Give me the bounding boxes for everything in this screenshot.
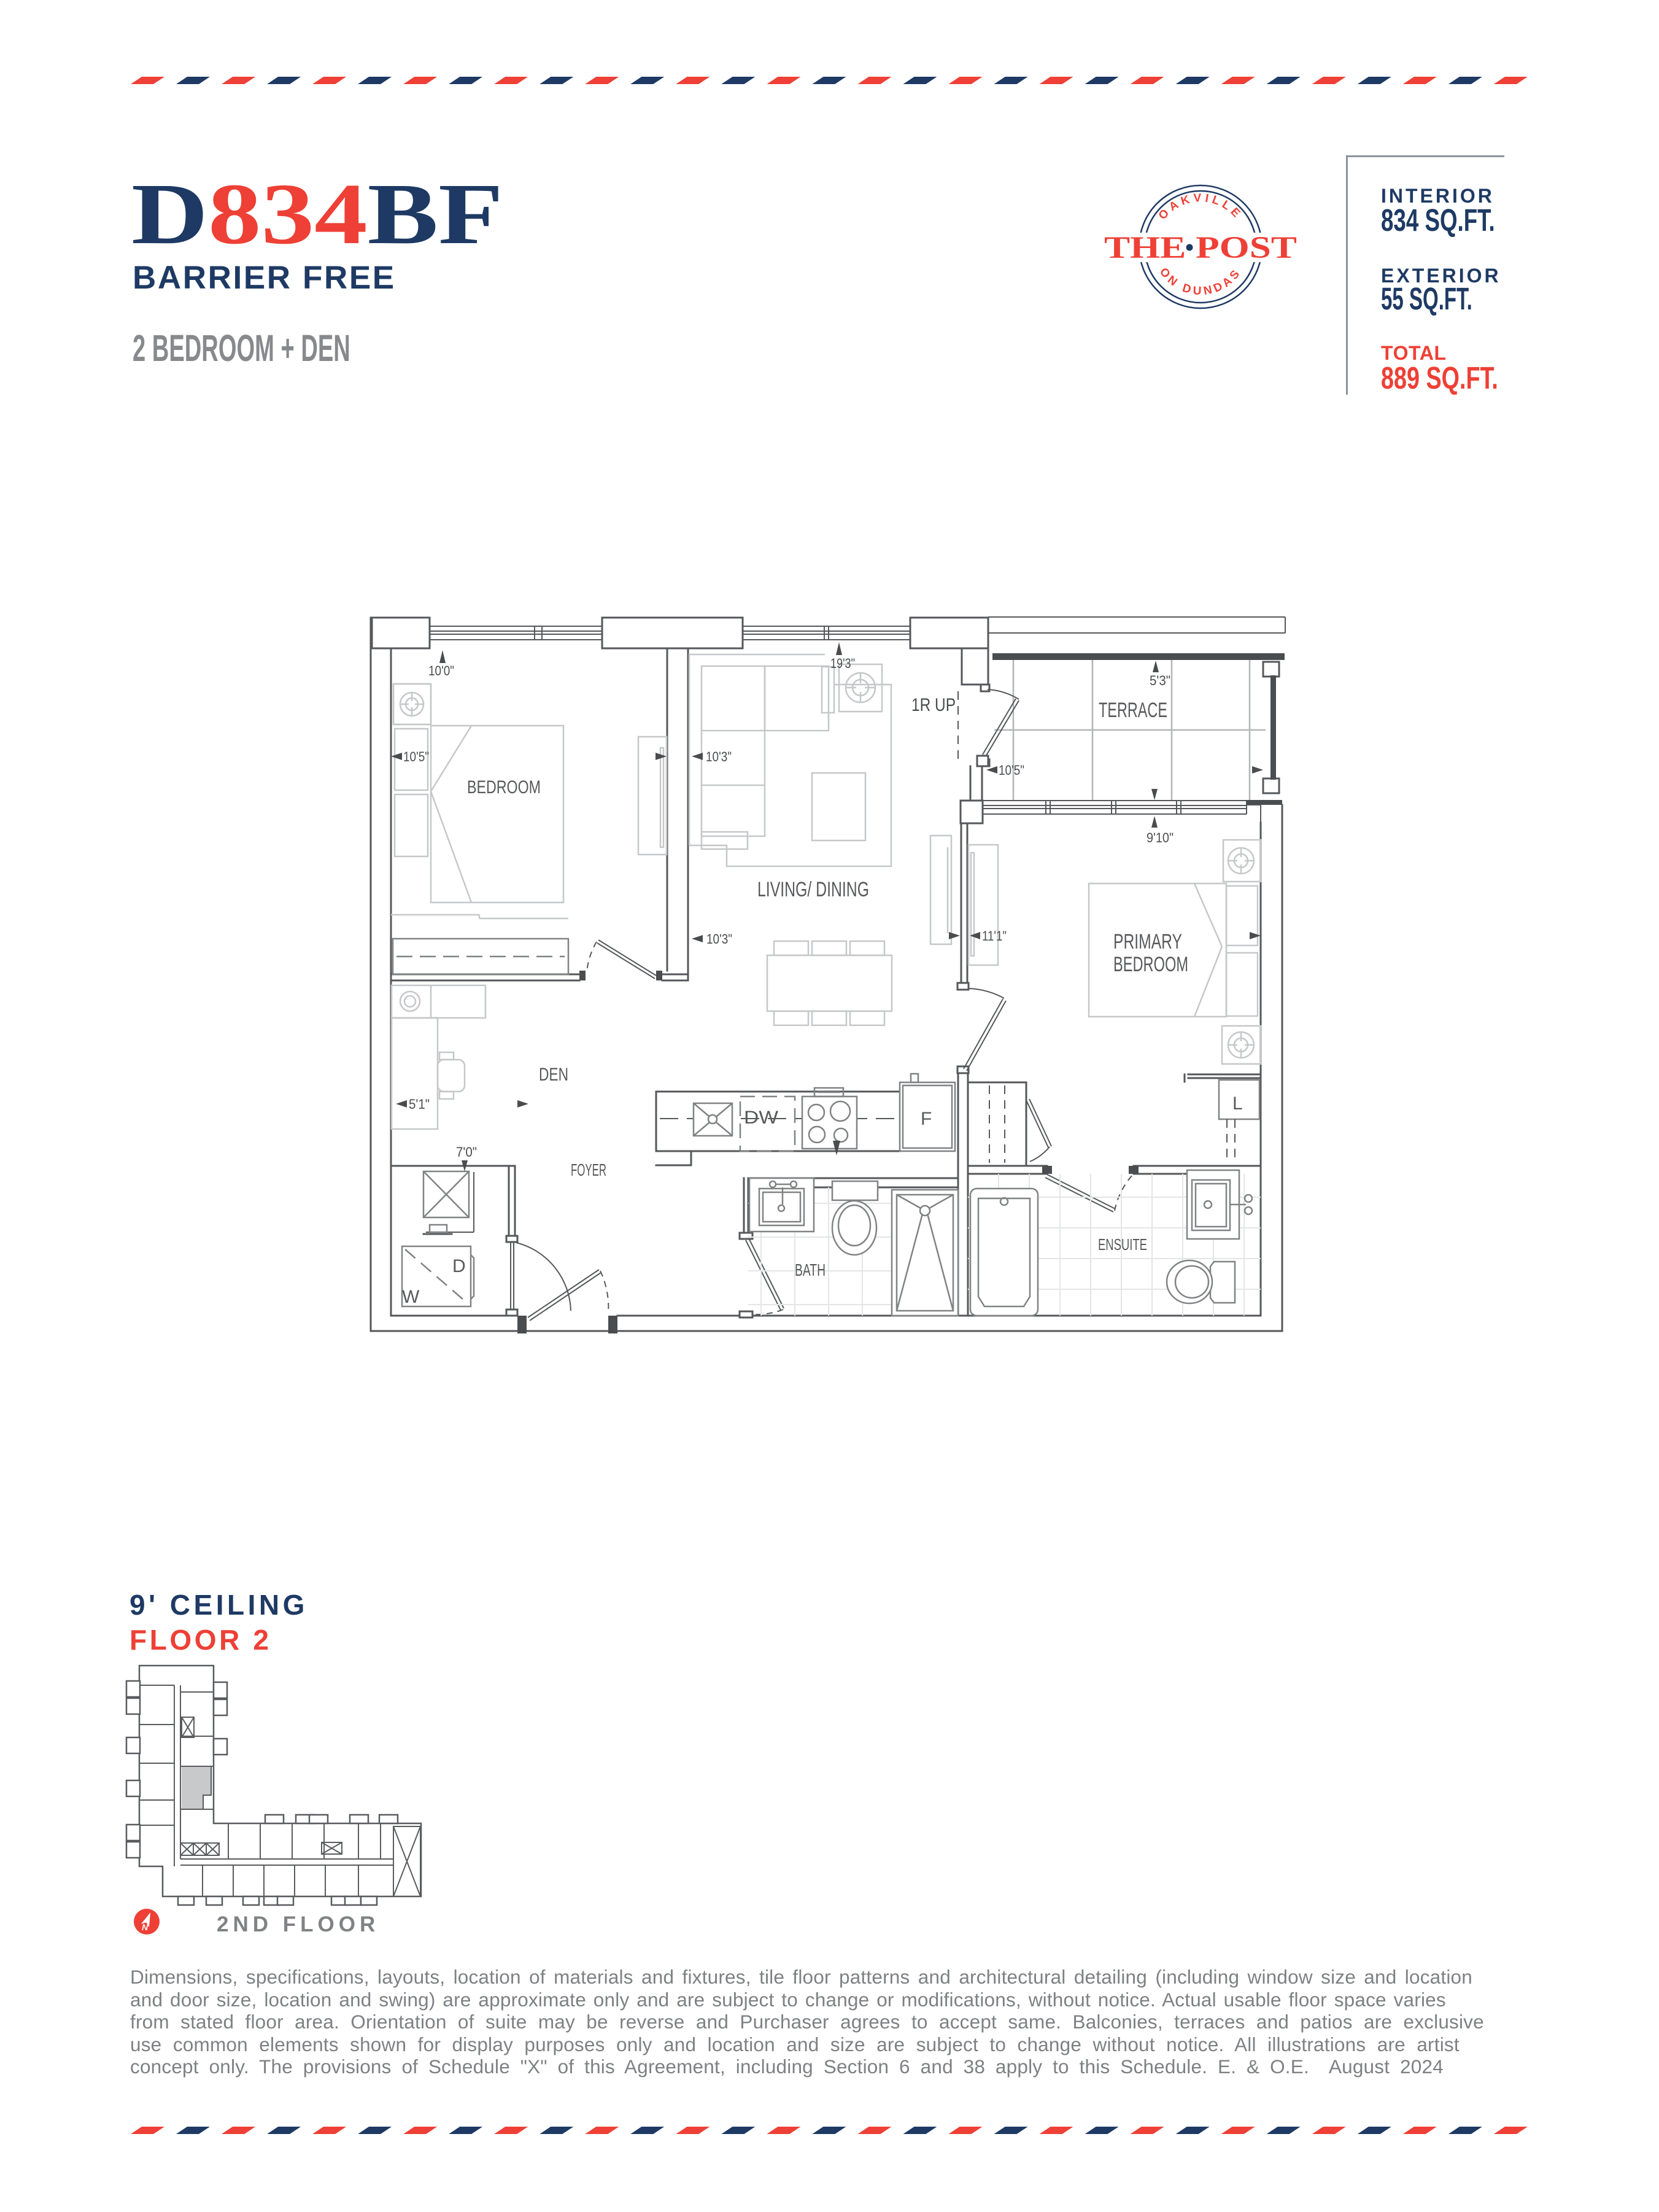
svg-text:DEN: DEN <box>539 1065 568 1085</box>
svg-text:L: L <box>1232 1093 1243 1114</box>
svg-text:10'5": 10'5" <box>999 763 1024 778</box>
svg-text:19'3": 19'3" <box>830 656 855 671</box>
svg-text:BEDROOM: BEDROOM <box>1113 953 1188 976</box>
svg-text:THE POST: THE POST <box>1104 231 1297 265</box>
svg-text:10'5": 10'5" <box>403 749 429 764</box>
svg-text:1R UP: 1R UP <box>911 695 956 715</box>
svg-text:TERRACE: TERRACE <box>1099 699 1167 722</box>
svg-text:7'0": 7'0" <box>456 1144 477 1160</box>
svg-text:10'3": 10'3" <box>706 931 732 947</box>
svg-text:BATH: BATH <box>795 1260 826 1279</box>
svg-text:9'10": 9'10" <box>1147 830 1174 845</box>
svg-text:OAKVILLE: OAKVILLE <box>1156 192 1245 222</box>
svg-text:PRIMARY: PRIMARY <box>1113 930 1182 953</box>
svg-text:10'0": 10'0" <box>428 663 454 678</box>
svg-text:N: N <box>142 1922 149 1932</box>
svg-text:5'1": 5'1" <box>409 1096 430 1112</box>
svg-text:BEDROOM: BEDROOM <box>467 777 541 797</box>
svg-text:FOYER: FOYER <box>571 1160 606 1179</box>
svg-text:10'3": 10'3" <box>706 749 732 764</box>
svg-text:F: F <box>921 1109 932 1129</box>
svg-text:LIVING/ DINING: LIVING/ DINING <box>757 878 869 901</box>
svg-text:W: W <box>402 1287 420 1307</box>
svg-text:D: D <box>452 1256 466 1276</box>
svg-text:DW: DW <box>744 1108 779 1128</box>
svg-text:ENSUITE: ENSUITE <box>1098 1235 1147 1254</box>
svg-text:11'1": 11'1" <box>982 928 1007 944</box>
svg-text:5'3": 5'3" <box>1150 673 1170 688</box>
